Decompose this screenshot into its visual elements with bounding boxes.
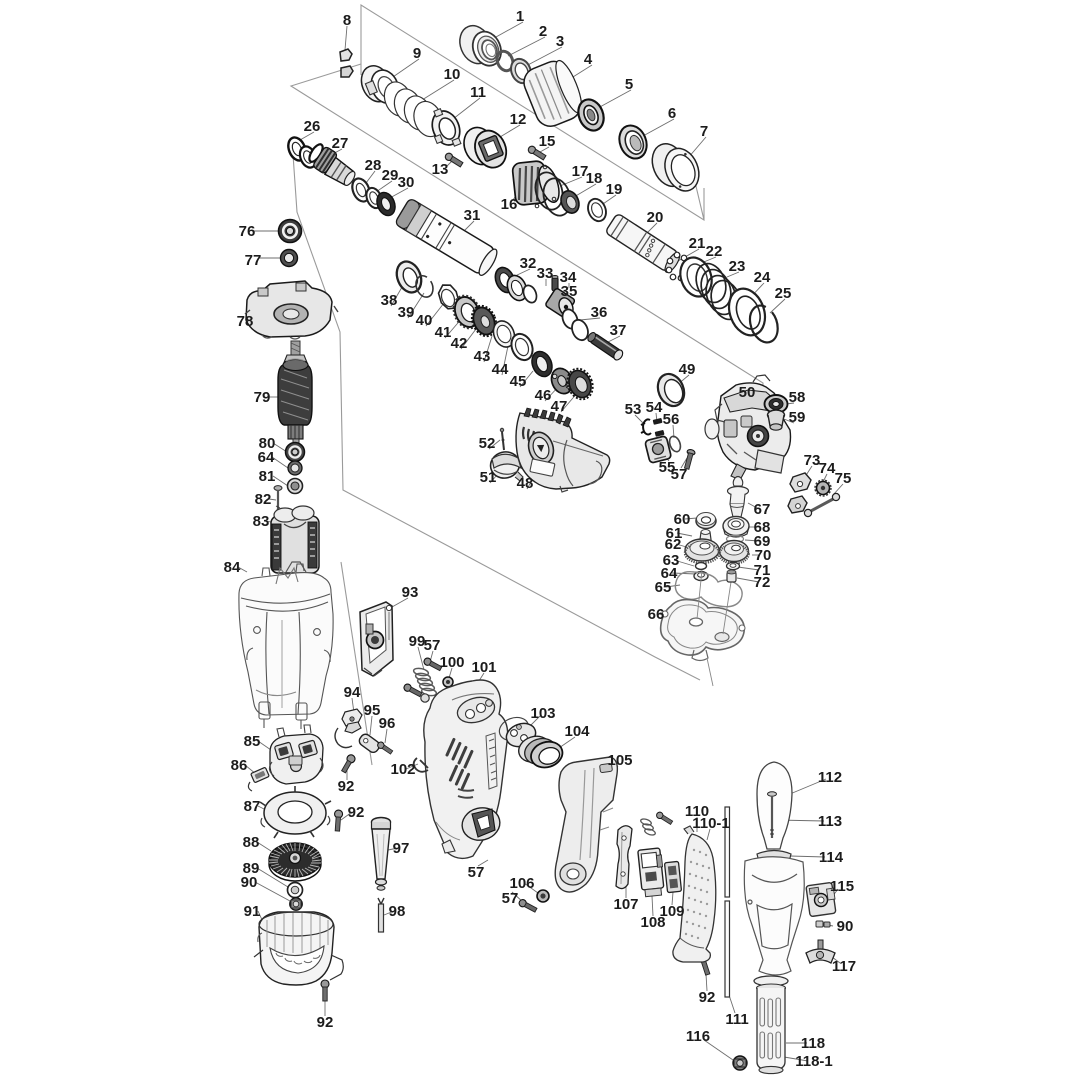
svg-text:86: 86 bbox=[231, 757, 248, 774]
svg-text:12: 12 bbox=[510, 111, 527, 128]
svg-text:10: 10 bbox=[444, 66, 461, 83]
svg-text:24: 24 bbox=[754, 269, 771, 286]
svg-text:32: 32 bbox=[520, 255, 537, 272]
svg-text:57: 57 bbox=[671, 466, 688, 483]
svg-text:9: 9 bbox=[413, 45, 421, 62]
svg-text:97: 97 bbox=[393, 840, 410, 857]
svg-text:111: 111 bbox=[725, 1011, 748, 1028]
svg-text:23: 23 bbox=[729, 258, 746, 275]
svg-text:27: 27 bbox=[332, 135, 349, 152]
svg-text:116: 116 bbox=[686, 1028, 710, 1045]
svg-text:19: 19 bbox=[606, 181, 623, 198]
svg-text:112: 112 bbox=[818, 769, 842, 786]
svg-text:51: 51 bbox=[480, 469, 497, 486]
svg-text:67: 67 bbox=[754, 501, 771, 518]
svg-text:96: 96 bbox=[379, 715, 396, 732]
svg-text:93: 93 bbox=[402, 584, 419, 601]
svg-text:45: 45 bbox=[510, 373, 527, 390]
svg-text:83: 83 bbox=[253, 513, 270, 530]
svg-text:74: 74 bbox=[819, 460, 836, 477]
svg-text:33: 33 bbox=[537, 265, 554, 282]
svg-text:49: 49 bbox=[679, 361, 696, 378]
svg-text:35: 35 bbox=[561, 283, 578, 300]
svg-text:40: 40 bbox=[416, 312, 433, 329]
svg-text:118: 118 bbox=[801, 1035, 825, 1052]
svg-text:38: 38 bbox=[381, 292, 398, 309]
svg-text:109: 109 bbox=[659, 903, 684, 920]
svg-text:118-1: 118-1 bbox=[795, 1053, 833, 1070]
svg-text:90: 90 bbox=[241, 874, 258, 891]
svg-text:76: 76 bbox=[239, 223, 256, 240]
svg-text:92: 92 bbox=[317, 1014, 334, 1031]
svg-text:103: 103 bbox=[530, 705, 555, 722]
svg-text:8: 8 bbox=[343, 12, 351, 29]
svg-text:21: 21 bbox=[689, 235, 706, 252]
svg-text:92: 92 bbox=[699, 989, 716, 1006]
svg-text:7: 7 bbox=[700, 123, 708, 140]
svg-text:91: 91 bbox=[244, 903, 261, 920]
svg-text:75: 75 bbox=[835, 470, 852, 487]
svg-text:4: 4 bbox=[584, 51, 593, 68]
svg-text:101: 101 bbox=[471, 659, 496, 676]
svg-text:25: 25 bbox=[775, 285, 792, 302]
svg-text:94: 94 bbox=[344, 684, 361, 701]
svg-text:62: 62 bbox=[665, 536, 682, 553]
svg-text:66: 66 bbox=[648, 606, 665, 623]
svg-text:42: 42 bbox=[451, 335, 468, 352]
svg-text:13: 13 bbox=[432, 161, 449, 178]
svg-text:57: 57 bbox=[424, 637, 441, 654]
svg-text:47: 47 bbox=[551, 398, 568, 415]
svg-text:57: 57 bbox=[468, 864, 485, 881]
svg-text:59: 59 bbox=[789, 409, 806, 426]
svg-text:57: 57 bbox=[502, 890, 519, 907]
svg-text:30: 30 bbox=[398, 174, 415, 191]
svg-text:41: 41 bbox=[435, 324, 452, 341]
svg-text:64: 64 bbox=[258, 449, 275, 466]
svg-text:22: 22 bbox=[706, 243, 723, 260]
svg-text:2: 2 bbox=[539, 23, 547, 40]
svg-text:50: 50 bbox=[739, 384, 756, 401]
svg-text:84: 84 bbox=[224, 559, 241, 576]
svg-text:58: 58 bbox=[789, 389, 806, 406]
svg-text:77: 77 bbox=[245, 252, 262, 269]
svg-text:26: 26 bbox=[304, 118, 321, 135]
svg-text:20: 20 bbox=[647, 209, 664, 226]
svg-text:92: 92 bbox=[348, 804, 365, 821]
svg-text:65: 65 bbox=[655, 579, 672, 596]
svg-text:5: 5 bbox=[625, 76, 633, 93]
svg-text:92: 92 bbox=[338, 778, 355, 795]
svg-text:1: 1 bbox=[516, 8, 524, 25]
svg-text:3: 3 bbox=[556, 33, 564, 50]
svg-text:107: 107 bbox=[613, 896, 638, 913]
svg-text:18: 18 bbox=[586, 170, 603, 187]
svg-text:37: 37 bbox=[610, 322, 627, 339]
svg-text:98: 98 bbox=[389, 903, 406, 920]
svg-text:100: 100 bbox=[439, 654, 464, 671]
svg-text:29: 29 bbox=[382, 167, 399, 184]
svg-text:28: 28 bbox=[365, 157, 382, 174]
svg-text:113: 113 bbox=[818, 813, 842, 830]
svg-text:85: 85 bbox=[244, 733, 261, 750]
svg-text:15: 15 bbox=[539, 133, 556, 150]
svg-text:11: 11 bbox=[470, 84, 486, 101]
svg-text:16: 16 bbox=[501, 196, 518, 213]
svg-text:102: 102 bbox=[390, 761, 415, 778]
svg-text:48: 48 bbox=[517, 475, 534, 492]
svg-text:78: 78 bbox=[237, 313, 254, 330]
svg-text:72: 72 bbox=[754, 574, 771, 591]
svg-text:110-1: 110-1 bbox=[692, 815, 730, 832]
svg-text:46: 46 bbox=[535, 387, 552, 404]
svg-text:90: 90 bbox=[837, 918, 854, 935]
svg-text:6: 6 bbox=[668, 105, 676, 122]
svg-text:44: 44 bbox=[492, 361, 509, 378]
svg-text:105: 105 bbox=[607, 752, 632, 769]
svg-text:43: 43 bbox=[474, 348, 491, 365]
svg-text:117: 117 bbox=[832, 958, 856, 975]
svg-text:81: 81 bbox=[259, 468, 276, 485]
svg-text:115: 115 bbox=[830, 878, 854, 895]
svg-text:87: 87 bbox=[244, 798, 261, 815]
svg-text:88: 88 bbox=[243, 834, 260, 851]
svg-text:54: 54 bbox=[646, 399, 663, 416]
svg-text:104: 104 bbox=[564, 723, 590, 740]
svg-text:52: 52 bbox=[479, 435, 496, 452]
svg-text:53: 53 bbox=[625, 401, 642, 418]
svg-text:79: 79 bbox=[254, 389, 271, 406]
svg-text:56: 56 bbox=[663, 411, 680, 428]
svg-text:82: 82 bbox=[255, 491, 272, 508]
svg-text:31: 31 bbox=[464, 207, 481, 224]
svg-text:114: 114 bbox=[819, 849, 844, 866]
svg-text:39: 39 bbox=[398, 304, 415, 321]
svg-text:36: 36 bbox=[591, 304, 608, 321]
